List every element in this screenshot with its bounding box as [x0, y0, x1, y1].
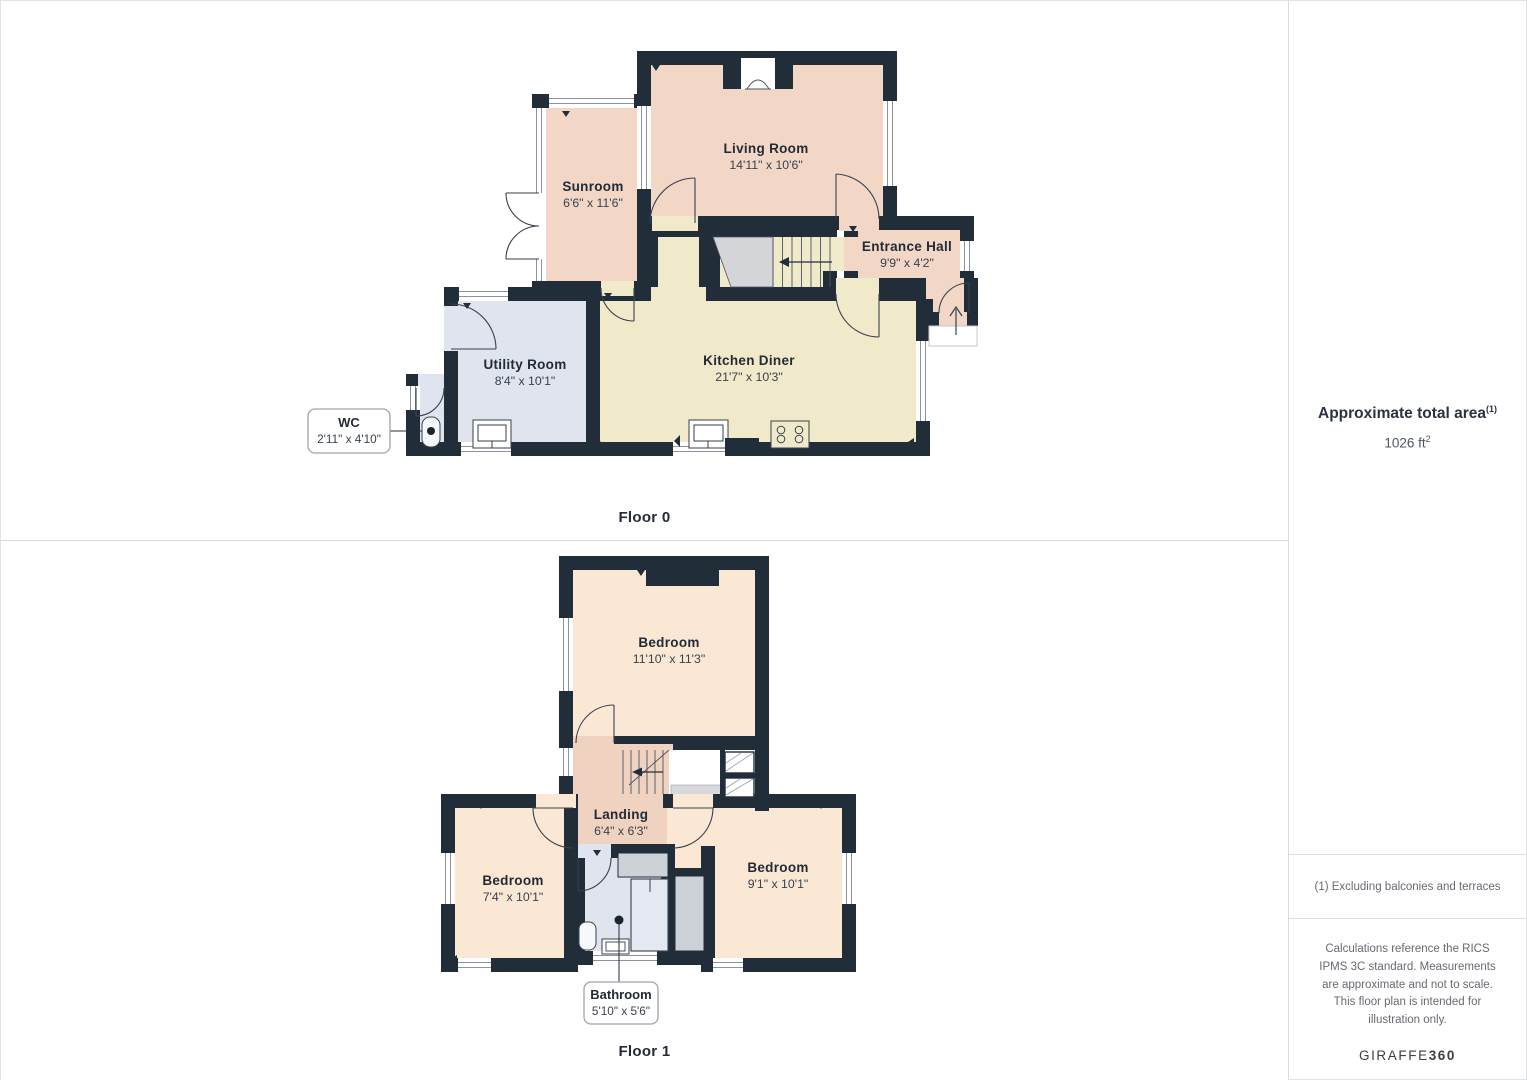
brand-name: GIRAFFE [1359, 1048, 1429, 1063]
hob-icon [771, 421, 809, 448]
giraffe360-logo: GIRAFFE360 [1359, 1046, 1456, 1067]
fireplace-icon [723, 51, 793, 89]
window [532, 259, 546, 281]
bathroom-leader-dot [615, 916, 624, 925]
room-label: Living Room [723, 141, 808, 156]
bathroom-dims: 5'10" x 5'6" [592, 1004, 650, 1018]
area-title-text: Approximate total area [1318, 405, 1486, 422]
window [916, 341, 930, 421]
window [559, 618, 573, 691]
window [458, 958, 491, 972]
footnote-text: (1) Excluding balconies and terraces [1314, 881, 1500, 893]
room-dims: 8'4" x 10'1" [495, 374, 556, 388]
room-entrance-hall [851, 223, 967, 285]
room-label: Bedroom [482, 873, 543, 888]
cupboard [725, 752, 754, 773]
shower-icon [631, 879, 668, 951]
cupboard [725, 778, 754, 797]
room-label: Kitchen Diner [703, 353, 795, 368]
room-dims: 6'4" x 6'3" [594, 824, 648, 838]
room-dims: 7'4" x 10'1" [483, 890, 544, 904]
window [532, 108, 546, 193]
floor0-caption: Floor 0 [1, 509, 1288, 526]
sidebar: Approximate total area(1) 1026 ft2 (1) E… [1289, 1, 1526, 1079]
bathroom-label: Bathroom [590, 987, 651, 1002]
disclaimer-text: Calculations reference the RICS IPMS 3C … [1312, 941, 1504, 1030]
area-value-text: 1026 ft [1384, 436, 1425, 451]
toilet-icon [422, 417, 440, 447]
sink-icon [602, 939, 629, 954]
area-summary: Approximate total area(1) 1026 ft2 [1289, 1, 1526, 855]
floorplan-page: WC 2'11" x 4'10" Sunroom 6'6" x 11'6" Li… [0, 0, 1527, 1080]
room-label: Sunroom [562, 179, 623, 194]
floor0-panel: WC 2'11" x 4'10" Sunroom 6'6" x 11'6" Li… [1, 1, 1288, 541]
wc-dims: 2'11" x 4'10" [317, 432, 381, 446]
room-dims: 14'11" x 10'6" [729, 158, 802, 172]
window [459, 287, 508, 301]
area-value-superscript: 2 [1426, 434, 1431, 444]
corridor [651, 230, 706, 294]
wc-callout: WC 2'11" x 4'10" [308, 409, 422, 453]
window [441, 853, 455, 904]
floor0-plan: WC 2'11" x 4'10" Sunroom 6'6" x 11'6" Li… [1, 1, 1288, 540]
room-label: Landing [594, 807, 649, 822]
chimney-breast [646, 556, 719, 586]
room-dims: 6'6" x 11'6" [563, 196, 623, 210]
wc-label: WC [338, 415, 360, 430]
window [842, 853, 856, 904]
window [406, 386, 420, 410]
floor1-panel: Bathroom 5'10" x 5'6" Bedroom 11'10" x 1… [1, 541, 1288, 1080]
room-dims: 21'7" x 10'3" [715, 370, 782, 384]
floor1-caption: Floor 1 [1, 1043, 1288, 1060]
disclaimer-section: Calculations reference the RICS IPMS 3C … [1289, 919, 1526, 1079]
window [559, 748, 573, 776]
kitchen-sink-icon [689, 420, 728, 448]
footnote-section: (1) Excluding balconies and terraces [1289, 855, 1526, 919]
room-dims: 9'9" x 4'2" [880, 256, 934, 270]
toilet-icon [579, 922, 596, 950]
window [960, 241, 974, 271]
room-label: Bedroom [747, 860, 808, 875]
room-label: Utility Room [483, 357, 566, 372]
french-doors [506, 193, 546, 259]
window [713, 958, 743, 972]
bath-cupboard [618, 853, 668, 877]
room-dims: 9'1" x 10'1" [748, 877, 809, 891]
room-dims: 11'10" x 11'3" [633, 652, 705, 666]
brand-suffix: 360 [1429, 1048, 1456, 1063]
room-label: Entrance Hall [862, 239, 952, 254]
utility-sink-icon [473, 420, 511, 448]
area-title: Approximate total area(1) [1318, 404, 1497, 423]
area-value: 1026 ft2 [1384, 434, 1430, 451]
floorplans-area: WC 2'11" x 4'10" Sunroom 6'6" x 11'6" Li… [1, 1, 1289, 1079]
room-sunroom [539, 101, 644, 288]
room-label: Bedroom [638, 635, 699, 650]
window [549, 94, 634, 108]
porch-step [929, 326, 977, 346]
window [637, 106, 651, 189]
floor1-plan: Bathroom 5'10" x 5'6" Bedroom 11'10" x 1… [1, 541, 1288, 1080]
window [883, 101, 897, 186]
area-title-superscript: (1) [1486, 404, 1497, 414]
